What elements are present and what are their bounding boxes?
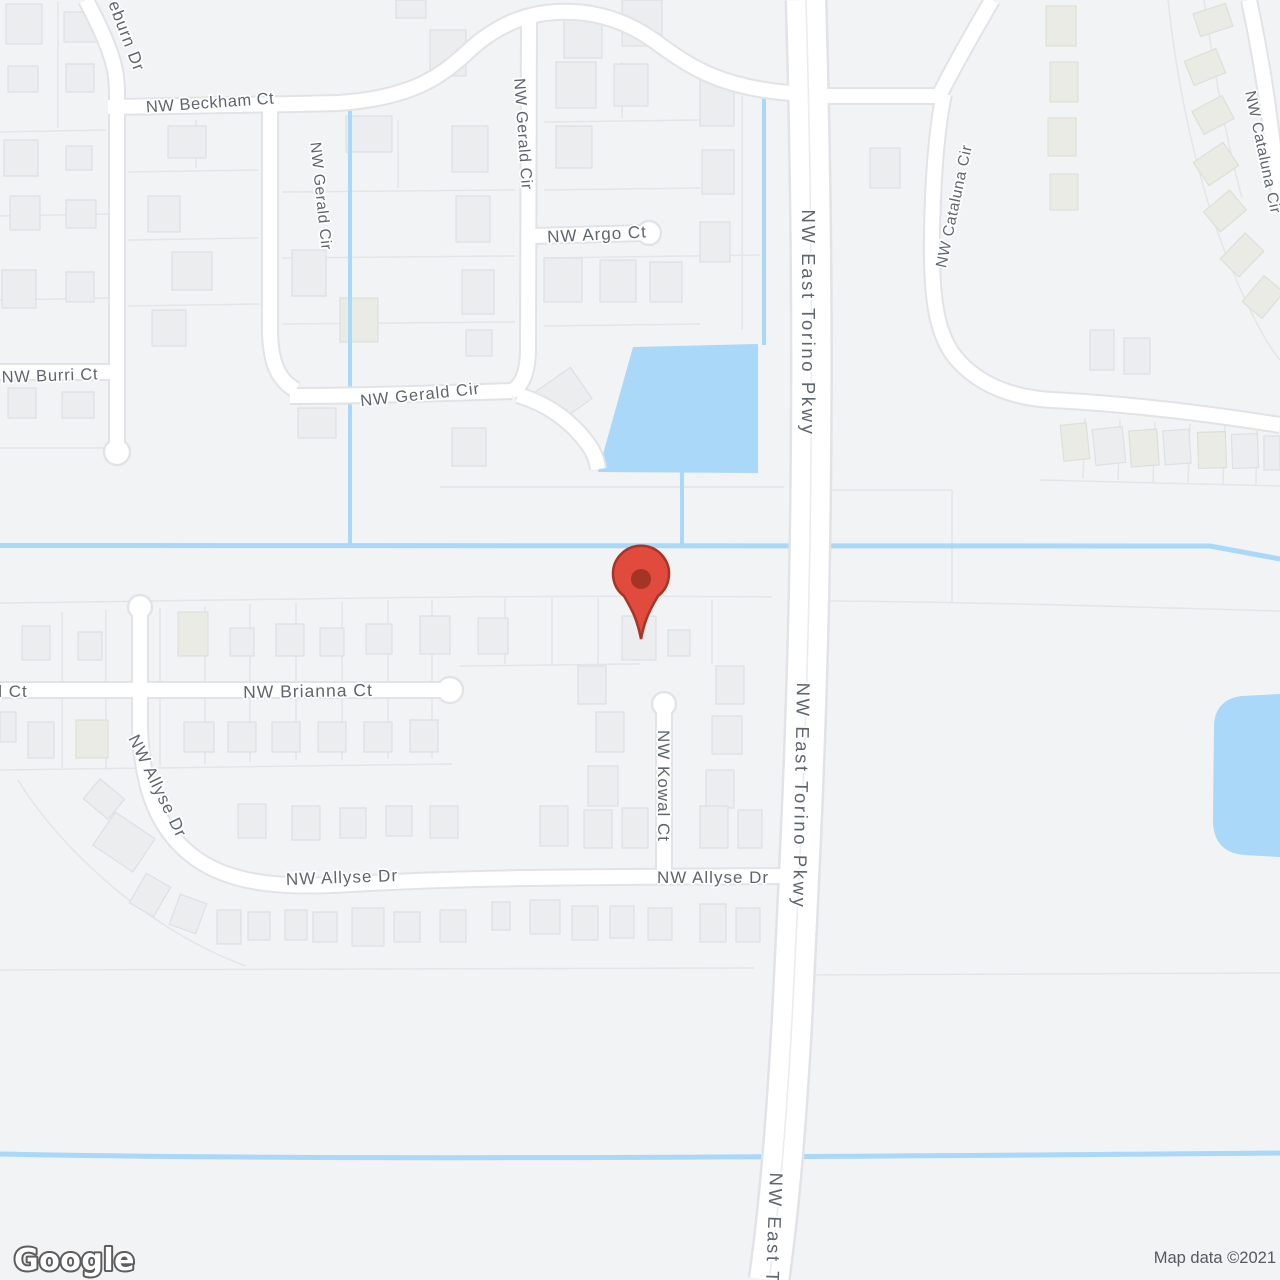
google-logo[interactable]: Google [14,1243,135,1278]
street-label-brianna: NW Brianna Ct [243,680,373,702]
street-label-kowal: NW Kowal Ct [654,730,673,842]
street-label-burri: NW Burri Ct [1,365,98,386]
street-label-west-ct-partial: l Ct [0,682,28,701]
street-label-allyse-mid: NW Allyse Dr [286,866,399,889]
map-data-attribution: Map data ©2021 [1154,1249,1276,1267]
lake-east [1213,694,1280,857]
street-label-torino-mid: NW East Torino Pkwy [789,682,814,909]
map-canvas[interactable]: eburn Dr NW Beckham Ct NW Gerald Cir NW … [0,0,1280,1280]
street-label-torino-upper: NW East Torino Pkwy [798,210,819,437]
street-label-allyse-east: NW Allyse Dr [657,868,769,887]
map-svg: eburn Dr NW Beckham Ct NW Gerald Cir NW … [0,0,1280,1280]
